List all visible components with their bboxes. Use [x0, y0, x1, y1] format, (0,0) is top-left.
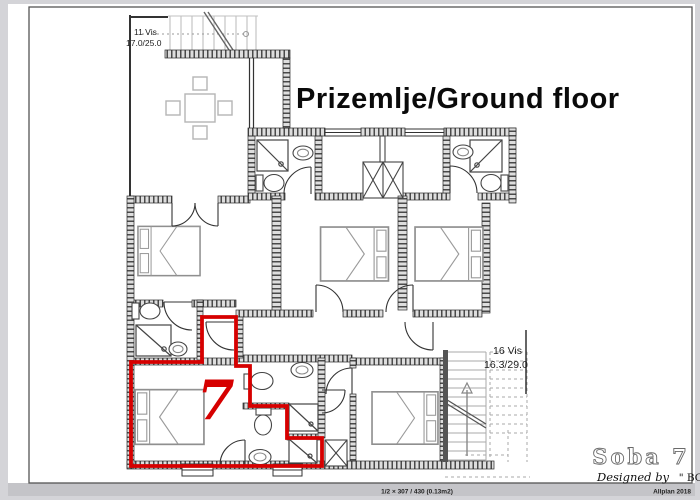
- designer-name: " BOVA": [679, 472, 700, 484]
- bed: [321, 227, 389, 281]
- toilet: [481, 175, 508, 192]
- terrace-label-line1: 11 Vis: [134, 27, 157, 37]
- sink: [453, 145, 473, 159]
- window: [405, 129, 444, 136]
- sink: [291, 363, 313, 378]
- room-7-number: 7: [197, 368, 235, 432]
- floorplan-viewer: 11 Vis 17.0/25.0 16 Vis 16.3/29.0 Prizem…: [0, 0, 700, 500]
- title-block-room-name: Soba 7: [592, 444, 689, 469]
- staircase-label-line1: 16 Vis: [493, 345, 522, 357]
- shower: [136, 325, 171, 356]
- chair: [193, 126, 207, 139]
- shower: [289, 439, 317, 463]
- chair: [218, 101, 232, 115]
- chair: [193, 77, 207, 90]
- svg-text:Designed by " BOVA": Designed by " BOVA": [596, 470, 700, 484]
- stair-wall: [443, 350, 448, 462]
- toilet: [256, 175, 284, 192]
- toilet: [255, 408, 272, 435]
- terrace-label-line2: 17.0/25.0: [126, 38, 162, 48]
- chair: [166, 101, 180, 115]
- toilet: [132, 303, 160, 319]
- sink: [249, 450, 271, 465]
- bed: [372, 392, 438, 444]
- sink: [293, 146, 313, 160]
- bed: [135, 390, 204, 445]
- designed-by-script: Designed by: [596, 470, 670, 484]
- shower: [470, 140, 502, 172]
- title-block: Soba 7 Designed by " BOVA": [592, 444, 700, 484]
- print-info: 1/2 × 307 / 430 (0.13m2): [381, 489, 453, 496]
- footer-strip: [8, 483, 695, 496]
- shower: [257, 140, 288, 171]
- sink: [169, 342, 187, 356]
- page-title: Prizemlje/Ground floor: [296, 83, 620, 115]
- bed: [415, 227, 483, 281]
- shower: [289, 404, 318, 431]
- floorplan-canvas: 11 Vis 17.0/25.0 16 Vis 16.3/29.0 Prizem…: [0, 0, 700, 500]
- software-brand: Allplan 2018: [653, 489, 691, 496]
- staircase-label-line2: 16.3/29.0: [484, 359, 528, 371]
- window: [325, 129, 361, 136]
- bed: [138, 226, 200, 275]
- closet-shaft: [325, 440, 347, 466]
- table: [185, 94, 215, 122]
